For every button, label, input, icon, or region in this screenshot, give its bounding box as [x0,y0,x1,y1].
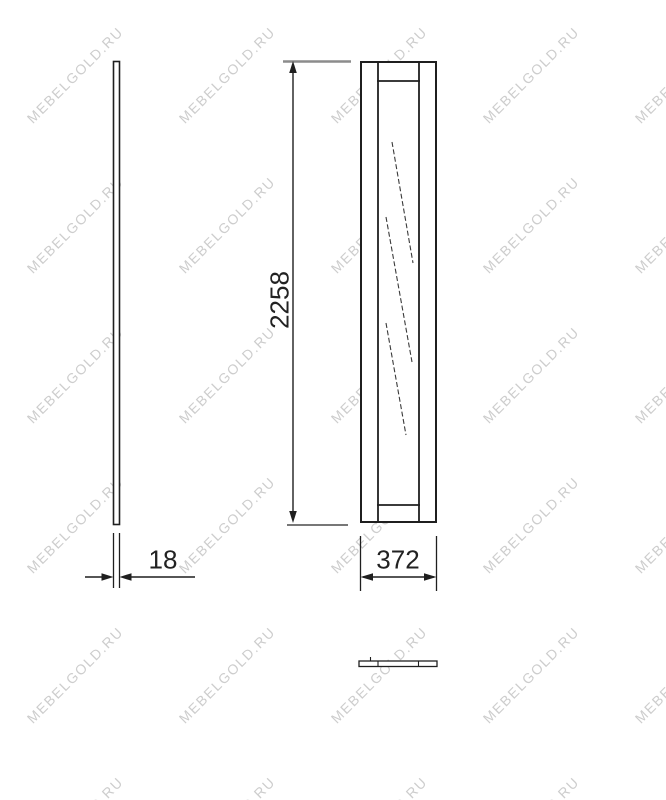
arrow-left-icon [120,573,132,581]
front-view-frame [361,62,436,522]
arrow-left-icon [361,573,374,581]
depth-dimension [85,533,195,588]
drawing-canvas: MEBELGOLD.RUMEBELGOLD.RUMEBELGOLD.RUMEBE… [0,0,666,800]
top-view-panel [359,657,437,667]
arrow-right-icon [102,573,114,581]
arrow-right-icon [424,573,437,581]
arrow-down-icon [289,511,297,523]
arrow-up-icon [289,61,297,73]
width-dimension-label: 372 [376,545,419,576]
top-view-outline [359,661,437,667]
side-view-panel [114,62,120,525]
technical-drawing [0,0,666,800]
depth-dimension-label: 18 [149,545,178,576]
side-panel-outline [114,62,120,525]
height-dimension-label: 2258 [265,271,296,329]
front-panel-outline [361,62,436,522]
